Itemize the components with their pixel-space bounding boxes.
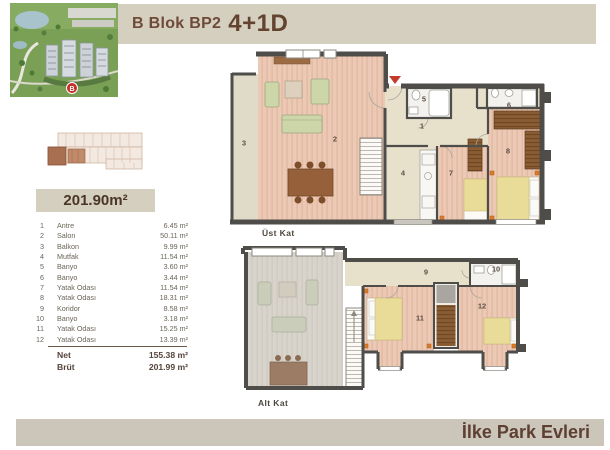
room-area: 8.58 m² [164,304,188,313]
stair-shaft [434,283,458,348]
room-number-label: 12 [478,302,486,311]
room-number: 6 [30,273,44,282]
totals-list: Net155.38 m²Brüt201.99 m² [30,350,188,373]
stairs-lower [346,308,362,388]
room-area: 50.11 m² [160,231,188,240]
totals-divider [48,346,187,347]
room-area: 9.99 m² [164,242,188,251]
room-area: 15.25 m² [160,324,188,333]
room-area: 3.60 m² [164,262,188,271]
stairs [360,138,382,195]
total-value: 201.99 m² [149,362,188,372]
room-row: 9Koridor8.58 m² [30,304,188,314]
room-number: 4 [30,252,44,261]
title-banner: B Blok BP2 4+1D [118,4,596,44]
room-row: 1Antre6.45 m² [30,221,188,231]
room-area: 13.39 m² [160,335,188,344]
room-row: 2Salon50.11 m² [30,231,188,241]
total-area-box: 201.90m² [36,189,155,212]
wall-tabs [544,92,551,220]
room-number-label: 2 [333,135,337,144]
room-name: Antre [57,221,164,230]
room-number: 12 [30,335,44,344]
room-number-label: 4 [401,169,405,178]
block-b-pin: B [67,83,78,94]
block-title: B Blok BP2 [132,15,221,33]
room-number-label: 8 [506,147,510,156]
room-name: Yatak Odası [57,293,160,302]
total-row: Brüt201.99 m² [30,362,188,374]
project-name: İlke Park Evleri [462,422,590,443]
bedroom12-furniture [484,318,518,344]
room-area: 6.45 m² [164,221,188,230]
room-number: 9 [30,304,44,313]
room-name: Yatak Odası [57,283,160,292]
room-name: Banyo [57,314,164,323]
footer-brand-bar: İlke Park Evleri [16,419,604,446]
aerial-photo-image: B [10,3,118,97]
brochure-page: B B Blok BP2 4+1D 201.90m² 1Antre [0,0,610,450]
upper-floor-label: Üst Kat [262,228,295,238]
room-name: Banyo [57,262,164,271]
aerial-photo: B [10,3,118,97]
room-row: 10Banyo3.18 m² [30,314,188,324]
room-number: 7 [30,283,44,292]
room-area: 3.44 m² [164,273,188,282]
room-number: 11 [30,324,44,333]
highlighted-unit [48,147,66,165]
unit-type-title: 4+1D [228,10,288,38]
room-number-label: 6 [507,101,511,110]
room-row: 4Mutfak11.54 m² [30,252,188,262]
room-number-label: 5 [422,95,426,104]
total-label: Brüt [57,362,149,372]
room-name: Mutfak [57,252,160,261]
bedroom11-furniture [367,298,402,340]
room-area: 11.54 m² [160,283,188,292]
total-label: Net [57,350,149,360]
room-number: 1 [30,221,44,230]
room-row: 12Yatak Odası13.39 m² [30,335,188,345]
room-number: 3 [30,242,44,251]
room-row: 5Banyo3.60 m² [30,262,188,272]
upper-floor-plan: 32156478 [228,46,558,231]
room-name: Banyo [57,273,164,282]
room-area: 18.31 m² [160,293,188,302]
room-number-label: 3 [242,139,246,148]
room-name: Salon [57,231,160,240]
room-row: 6Banyo3.44 m² [30,273,188,283]
room-name: Koridor [57,304,164,313]
lower-floor-plan: 9101112 [228,246,558,396]
room-number-label: 9 [424,268,428,277]
room-name: Yatak Odası [57,335,160,344]
total-row: Net155.38 m² [30,350,188,362]
room-number: 10 [30,314,44,323]
room-row: 8Yatak Odası18.31 m² [30,293,188,303]
lower-floor-label: Alt Kat [258,398,288,408]
room-list: 1Antre6.45 m²2Salon50.11 m²3Balkon9.99 m… [30,221,188,345]
svg-text:B: B [69,86,74,93]
room-number: 8 [30,293,44,302]
room-number-label: 7 [449,169,453,178]
balcony-floor [232,74,258,222]
total-value: 155.38 m² [149,350,188,360]
room-area: 3.18 m² [164,314,188,323]
room-number-label: 1 [420,122,424,131]
room-number: 5 [30,262,44,271]
room-number: 2 [30,231,44,240]
room-name: Yatak Odası [57,324,160,333]
entrance-arrow [389,76,401,84]
room-row: 3Balkon9.99 m² [30,242,188,252]
total-area-value: 201.90m² [63,192,127,209]
kitchen-counter [420,150,437,222]
room-number-label: 11 [416,314,424,323]
room-area: 11.54 m² [160,252,188,261]
floorplate-key [46,127,150,175]
room-number-label: 10 [492,265,500,274]
room-row: 7Yatak Odası11.54 m² [30,283,188,293]
room-row: 11Yatak Odası15.25 m² [30,324,188,334]
room-name: Balkon [57,242,164,251]
